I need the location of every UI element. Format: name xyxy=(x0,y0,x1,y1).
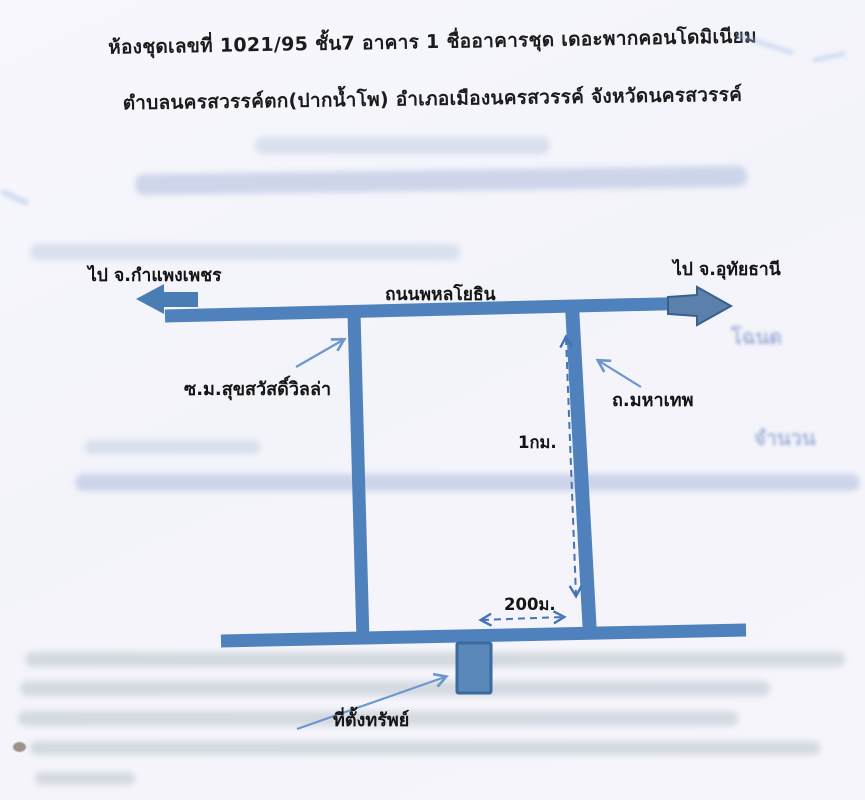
pointer-arrow-mahathep xyxy=(599,361,641,387)
label-cross-road: ถ.มหาเทพ xyxy=(612,390,693,411)
road-mahathep xyxy=(572,306,590,635)
distance-arrow-horizontal xyxy=(482,617,563,620)
bleedthrough-line xyxy=(255,137,550,154)
label-distance-horizontal: 200ม. xyxy=(504,595,556,614)
property-marker-rect xyxy=(457,643,491,693)
scan-streak xyxy=(812,52,846,63)
label-soi: ซ.ม.สุขสวัสดิ์วิลล่า xyxy=(184,375,331,401)
road-soi-sukswasdi-villa xyxy=(354,313,363,641)
scanned-document-page: ห้องชุดเลขที่ 1021/95 ชั้น7 อาคาร 1 ชื่อ… xyxy=(0,0,865,800)
label-property: ที่ตั้งทรัพย์ xyxy=(333,706,409,731)
label-main-road: ถนนพหลโยธิน xyxy=(385,283,496,305)
label-destination-right: ไป จ.อุทัยธานี xyxy=(671,258,781,280)
scan-streak xyxy=(0,189,29,206)
bleedthrough-line xyxy=(135,166,747,196)
document-title-line2: ตำบลนครสวรรค์ตก(ปากน้ำโพ) อำเภอเมืองนครส… xyxy=(0,78,865,120)
label-distance-vertical: 1กม. xyxy=(518,433,557,452)
road-bottom xyxy=(221,630,746,641)
location-map: ไป จ.กำแพงเพชร ถนนพหลโยธิน ไป จ.อุทัยธาน… xyxy=(0,240,865,760)
label-destination-left: ไป จ.กำแพงเพชร xyxy=(86,264,222,286)
document-title-line1: ห้องชุดเลขที่ 1021/95 ชั้น7 อาคาร 1 ชื่อ… xyxy=(0,19,865,64)
bleedthrough-line xyxy=(35,772,135,785)
east-direction-arrow-icon xyxy=(668,287,731,325)
pointer-arrow-soi xyxy=(296,340,343,367)
